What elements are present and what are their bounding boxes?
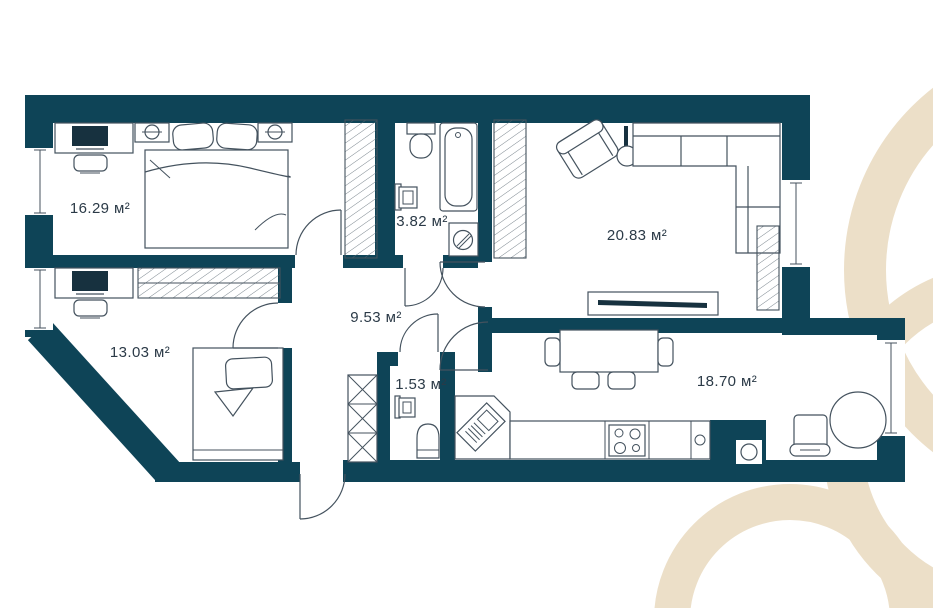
kitchen-corner-sink <box>455 396 510 459</box>
floor-plan-page: 16.29 м² 3.82 м² <box>0 0 933 608</box>
window-bedroom-second <box>25 268 53 330</box>
wardrobe-living-right <box>757 226 779 310</box>
window-living-room <box>782 180 810 267</box>
wardrobe-bedroom-main <box>345 120 377 258</box>
sink <box>395 396 415 418</box>
room-area-label: 18.70 м² <box>697 373 757 390</box>
room-area-label: 1.53 м² <box>395 376 446 393</box>
lounge-chair <box>790 415 830 456</box>
toilet <box>407 123 435 158</box>
window-bedroom-main <box>25 148 53 215</box>
nightstand-left <box>135 123 169 142</box>
room-area-label: 9.53 м² <box>350 309 401 326</box>
bathtub <box>440 123 477 211</box>
wardrobe-living-left <box>494 120 526 258</box>
room-area-label: 20.83 м² <box>607 227 667 244</box>
sink <box>395 184 417 210</box>
room-area-label: 16.29 м² <box>70 200 130 217</box>
floor-plan: 16.29 м² 3.82 м² <box>0 0 933 608</box>
stove <box>609 425 645 456</box>
room-area-label: 13.03 м² <box>110 344 170 361</box>
round-table <box>830 392 886 448</box>
washing-machine <box>449 223 478 256</box>
tv-stand <box>588 292 718 315</box>
nightstand-right <box>258 123 292 142</box>
shelf-unit <box>348 375 377 462</box>
kitchen-counter <box>510 421 710 459</box>
washer-niche <box>736 440 762 464</box>
toilet <box>417 424 439 458</box>
room-area-label: 3.82 м² <box>396 213 447 230</box>
single-bed <box>193 348 283 460</box>
